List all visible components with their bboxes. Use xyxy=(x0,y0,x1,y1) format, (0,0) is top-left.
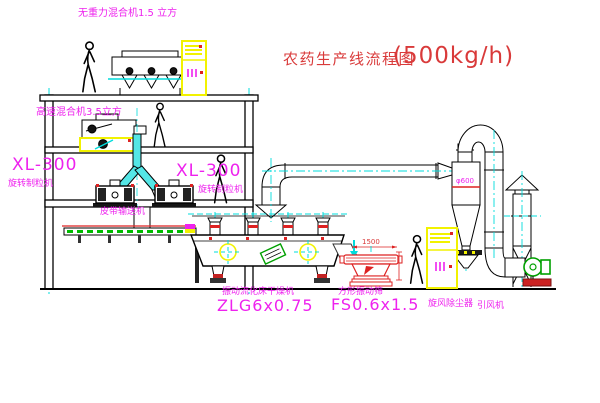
cyclone-name-label: 旋风除尘器 xyxy=(428,300,473,309)
granulator-left xyxy=(93,180,137,207)
fluid-bed-dryer xyxy=(188,212,348,283)
flow-diagram-canvas: 无重力混合机1.5 立方 农药生产线流程图 (500kg/h) 高速混合机3.5… xyxy=(0,0,600,403)
granulator-right-model: XL-300 xyxy=(176,163,241,180)
cyclone-dimension-label: φ600 xyxy=(456,178,474,185)
belt-conveyor-label: 皮带输送机 xyxy=(100,208,145,217)
control-cabinet-top xyxy=(182,41,206,95)
induced-draft-fan xyxy=(523,258,551,286)
granulator-left-model: XL-300 xyxy=(12,157,77,174)
person-figure xyxy=(154,103,165,146)
high-speed-mixer-label: 高速混合机3.5立方 xyxy=(36,108,122,118)
granulator-left-name: 旋转制粒机 xyxy=(8,180,53,189)
gravity-mixer-label: 无重力混合机1.5 立方 xyxy=(78,9,177,19)
fan-name-label: 引风机 xyxy=(477,302,504,311)
control-cabinet-right xyxy=(427,228,457,288)
vibrating-sieve xyxy=(333,240,402,286)
person-figure xyxy=(83,42,95,92)
sieve-model-label: FS0.6x1.5 xyxy=(331,297,419,313)
sieve-dimension-label: 1500 xyxy=(362,239,380,246)
person-figure xyxy=(411,236,423,284)
dryer-exhaust-duct xyxy=(256,158,460,222)
diagram-title-capacity: (500kg/h) xyxy=(393,45,514,68)
granulator-right xyxy=(152,180,196,207)
dryer-model-label: ZLG6x0.75 xyxy=(217,298,314,314)
granulator-right-name: 旋转制粒机 xyxy=(198,186,243,195)
belt-conveyor xyxy=(62,224,199,283)
